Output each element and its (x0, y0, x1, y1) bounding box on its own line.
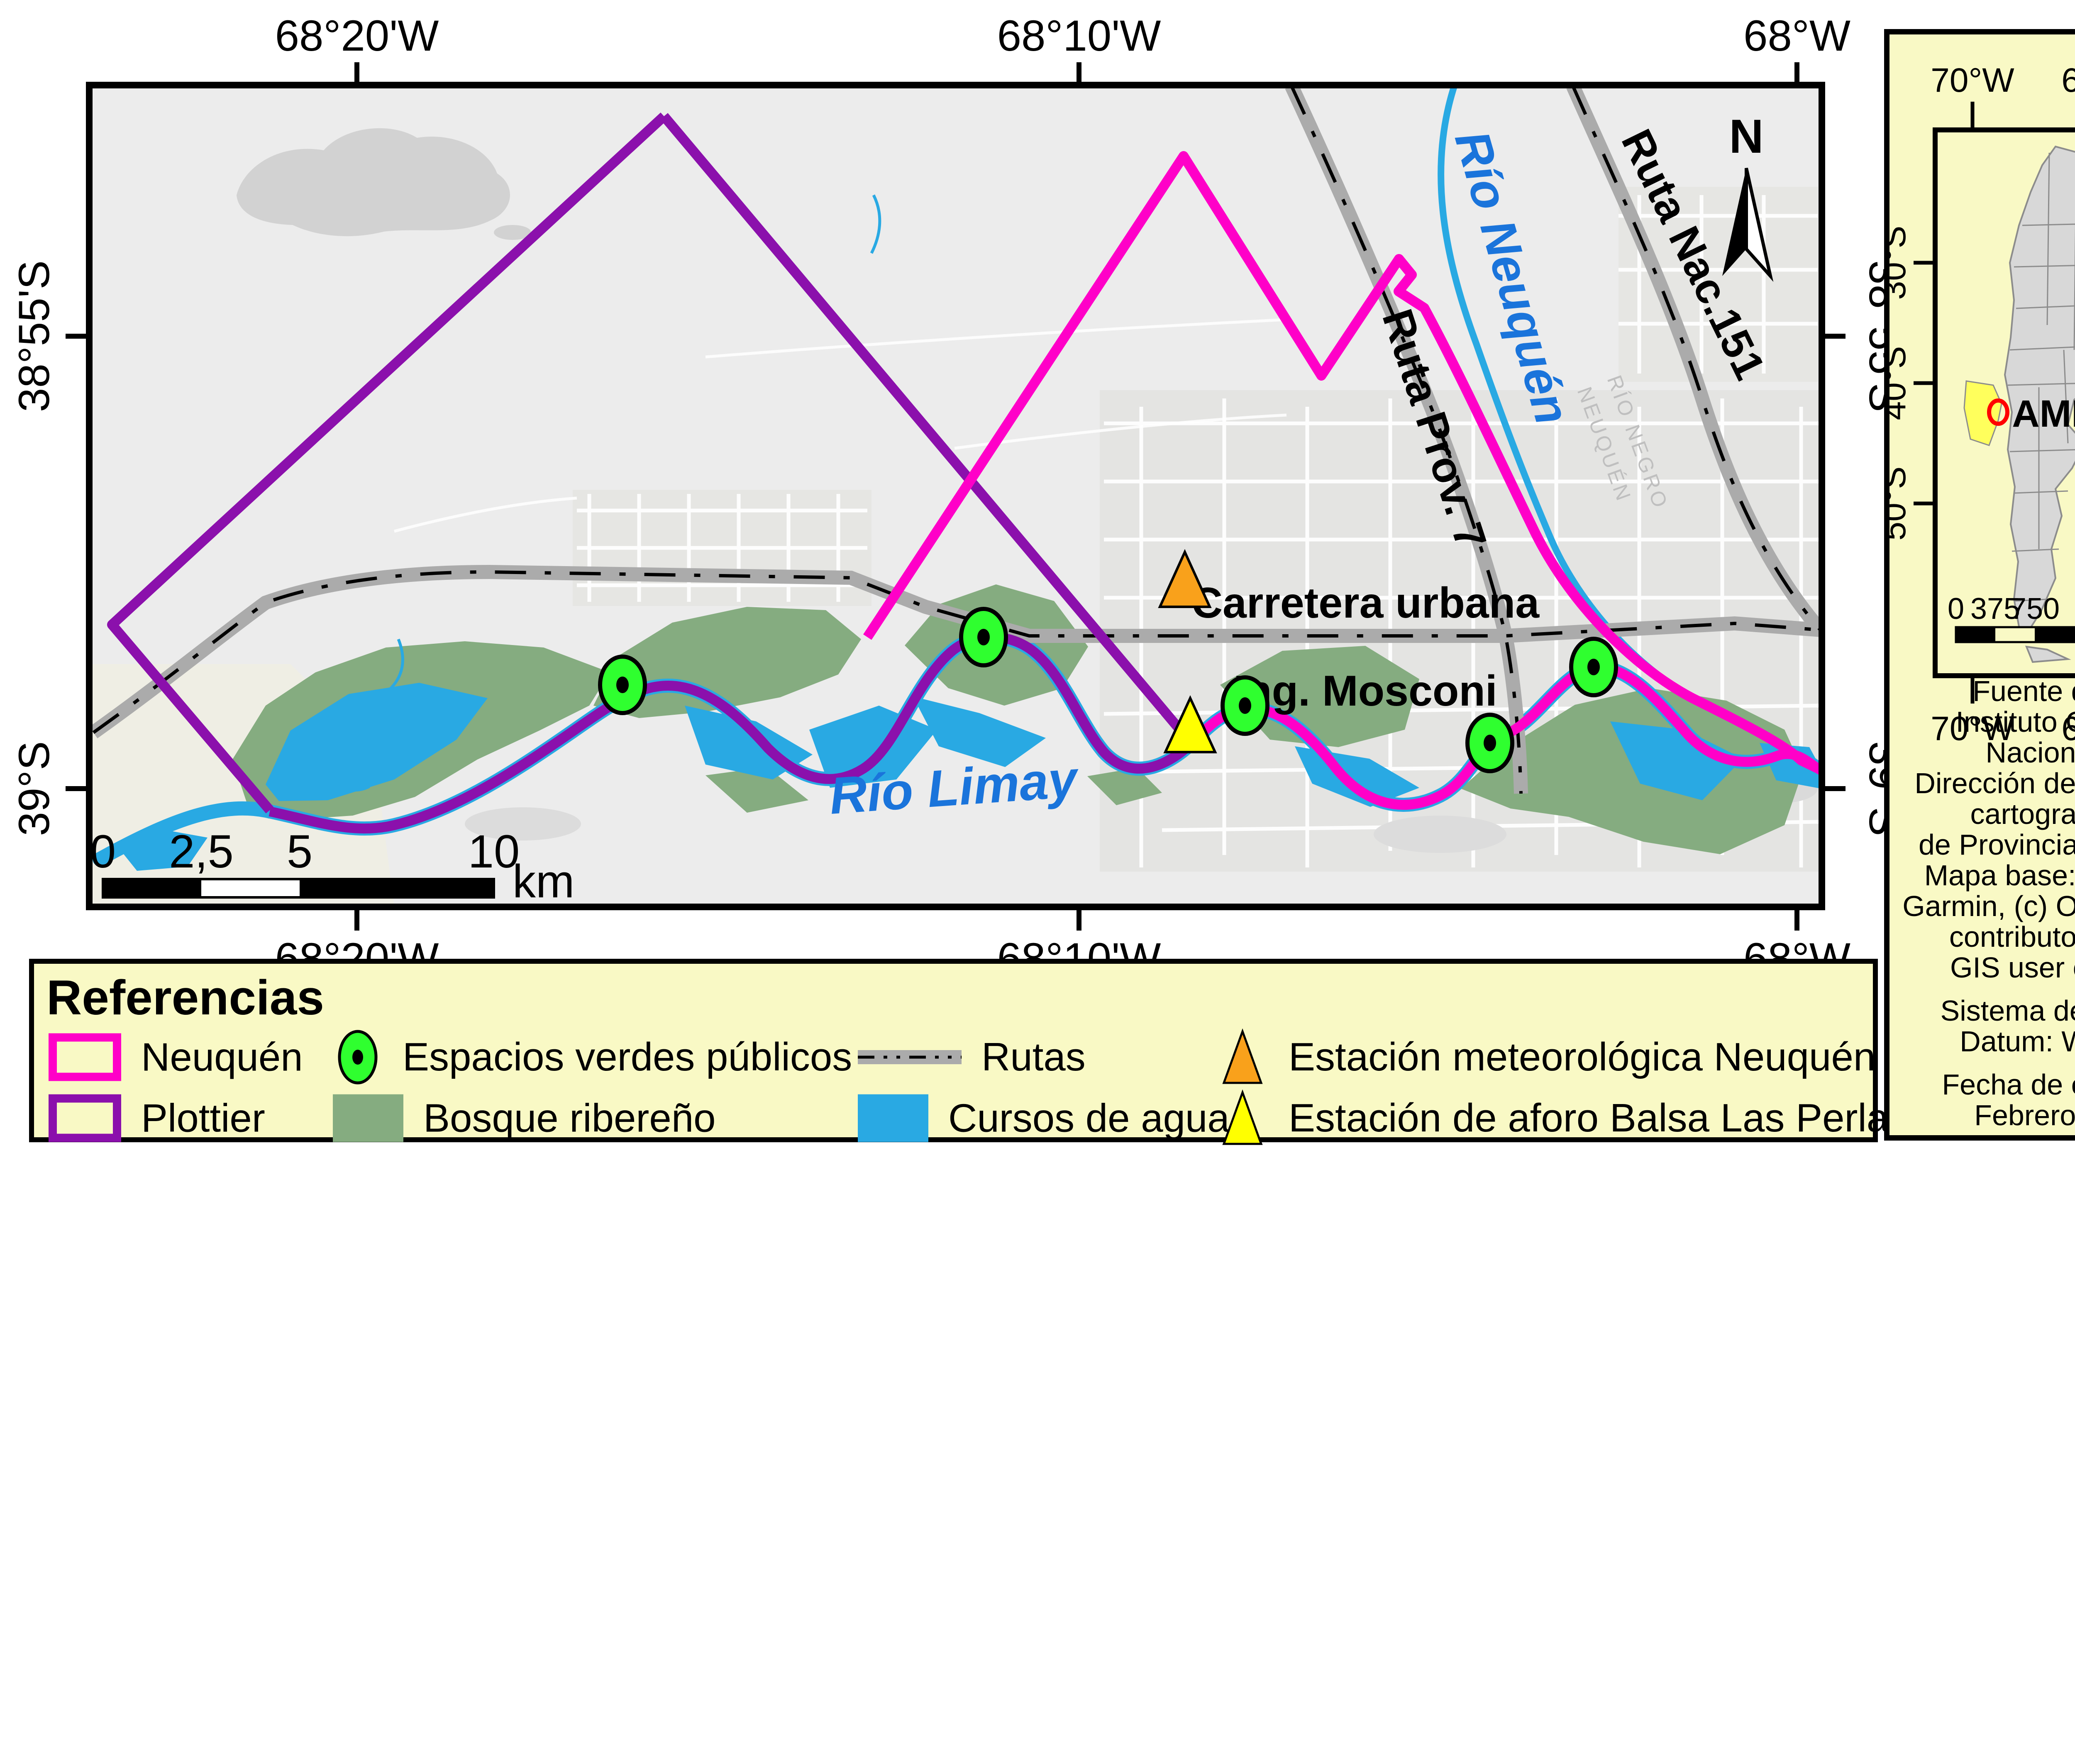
plottier-boundary-swatch (49, 1095, 121, 1142)
legend-item-estacion-aforo: Estación de aforo Balsa Las Perlas (1217, 1089, 1909, 1147)
legend-label: Bosque ribereño (423, 1095, 715, 1141)
source-line: GIS user community (1889, 952, 2075, 983)
main-map: Río Neuquén Ruta Nac.151 Ruta Prov. 7 RÍ… (0, 0, 2075, 967)
green-space-swatch (333, 1026, 383, 1088)
source-line: cartografía digital (1889, 799, 2075, 829)
x-tick-top-2: 68°W (1743, 12, 1850, 60)
green-space-marker (1467, 715, 1512, 771)
neuquen-boundary-swatch (49, 1033, 121, 1081)
carretera-label-line1: Carretera urbana (1191, 579, 1540, 627)
side-panel: AMN N 0 375 750 1.500 km (1884, 29, 2075, 1141)
inset-y-tick-left-2: 50°S (1889, 467, 1913, 541)
legend-box: Referencias Neuquén Plottier Espacios ve… (29, 959, 1878, 1142)
forest-swatch (333, 1095, 403, 1142)
y-tick-left-1: 39°S (10, 741, 59, 836)
inset-y-tick-left-1: 40°S (1889, 346, 1913, 420)
inset-map: AMN N 0 375 750 1.500 km (1889, 34, 2075, 753)
inset-x-tick-top-1: 60°W (2061, 61, 2075, 99)
reference-line: Sistema de referencia (1889, 995, 2075, 1026)
reference-line: Datum: WGS 1984 (1889, 1026, 2075, 1057)
legend-item-bosque: Bosque ribereño (333, 1095, 715, 1142)
scale-tick-0: 0 (90, 826, 116, 877)
source-line: Mapa base: Esri, HERE, (1889, 860, 2075, 891)
source-line: Instituto Geográfico (1889, 706, 2075, 737)
x-tick-top-0: 68°20'W (275, 12, 439, 60)
green-space-marker (1223, 677, 1267, 734)
scale-tick-2: 5 (287, 826, 312, 877)
source-line: Fuente de datos: (1889, 676, 2075, 706)
source-line: Nacional (IGN) (1889, 737, 2075, 768)
green-space-marker (1571, 639, 1616, 695)
river-wash-2 (1374, 816, 1506, 853)
road-swatch (858, 1043, 962, 1072)
weather-station-swatch (1217, 1028, 1269, 1086)
green-space-marker (961, 609, 1006, 665)
date-line: Febrero de 2021 (1889, 1100, 2075, 1131)
legend-label: Estación meteorológica Neuquén Aero (1289, 1034, 1968, 1080)
legend-item-neuquen: Neuquén (49, 1033, 303, 1081)
legend-label: Estación de aforo Balsa Las Perlas (1289, 1095, 1909, 1141)
gauging-station-swatch (1217, 1089, 1269, 1147)
green-space-marker (600, 657, 645, 713)
legend-item-rutas: Rutas (858, 1034, 1086, 1080)
source-line: contributors, and the (1889, 921, 2075, 952)
water-swatch (858, 1095, 928, 1142)
legend-label: Plottier (141, 1095, 265, 1141)
inset-y-tick-left-0: 30°S (1889, 226, 1913, 300)
legend-title: Referencias (46, 970, 324, 1026)
source-line: de Provincia de Neuquén (1889, 829, 2075, 860)
page: Río Neuquén Ruta Nac.151 Ruta Prov. 7 RÍ… (0, 0, 2075, 1764)
legend-item-cursos: Cursos de agua (858, 1095, 1230, 1142)
legend-label: Rutas (981, 1034, 1086, 1080)
amn-label: AMN (2012, 393, 2075, 435)
inset-scale-2: 750 (2010, 592, 2060, 625)
north-arrow-label: N (1729, 110, 1763, 163)
date-line: Fecha de elaboración (1889, 1069, 2075, 1100)
y-tick-left-0: 38°55'S (10, 260, 59, 412)
legend-label: Cursos de agua (948, 1095, 1230, 1141)
x-tick-top-1: 68°10'W (997, 12, 1161, 60)
scale-unit: km (513, 855, 574, 907)
legend-item-plottier: Plottier (49, 1095, 265, 1142)
panel-text: Fuente de datos: Instituto Geográfico Na… (1889, 676, 2075, 1131)
inset-scale-0: 0 (1948, 592, 1964, 625)
inset-x-tick-top-0: 70°W (1931, 61, 2014, 99)
source-line: Dirección de informática y (1889, 768, 2075, 799)
scale-tick-3: 10 (468, 826, 520, 877)
legend-label: Neuquén (141, 1034, 303, 1080)
legend-item-estacion-meteorologica: Estación meteorológica Neuquén Aero (1217, 1028, 1968, 1086)
source-line: Garmin, (c) OpenStreetMap (1889, 891, 2075, 921)
carretera-label-line2: Ing. Mosconi (1233, 667, 1497, 715)
legend-item-espacios-verdes: Espacios verdes públicos (333, 1026, 852, 1088)
scale-tick-1: 2,5 (169, 826, 234, 877)
legend-label: Espacios verdes públicos (403, 1034, 852, 1080)
